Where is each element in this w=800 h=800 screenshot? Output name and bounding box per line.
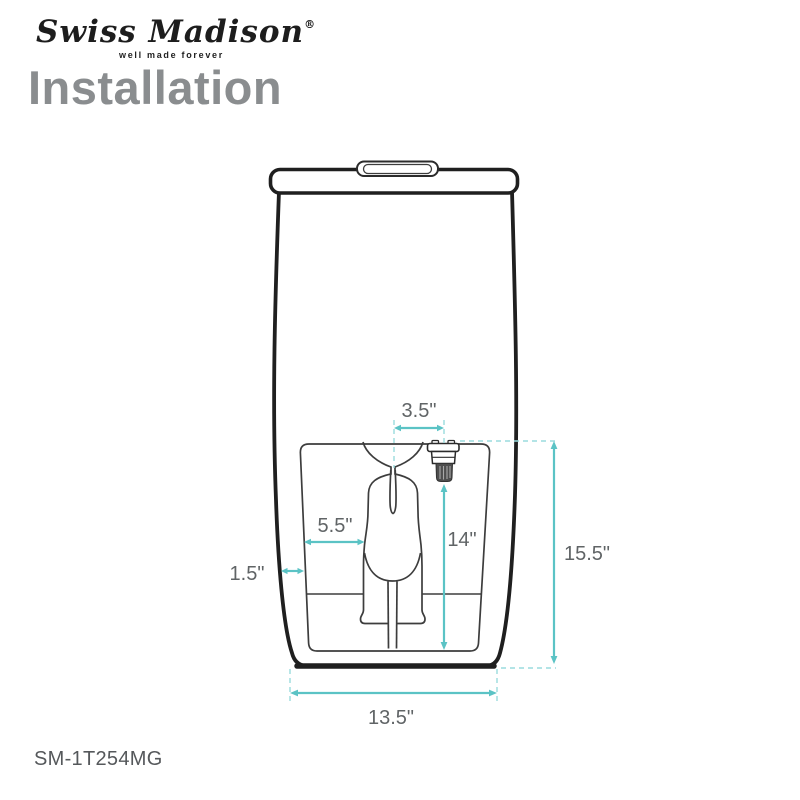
label-base-width: 13.5" <box>368 707 414 729</box>
drain-pipe-left <box>388 582 389 649</box>
label-valve-height: 14" <box>447 529 476 551</box>
model-number: SM-1T254MG <box>34 748 163 771</box>
dimension-base-width <box>290 690 497 697</box>
label-supply-height: 15.5" <box>564 543 610 565</box>
valve-flange <box>428 444 460 452</box>
label-wall-thickness: 1.5" <box>230 563 265 585</box>
page: { "brand": { "logo_text": "Swiss Madison… <box>0 0 800 800</box>
installation-diagram: 3.5" 5.5" 1.5" 14" 15.5" 13.5" <box>0 0 800 800</box>
label-trapway-offset: 5.5" <box>318 515 353 537</box>
toilet-outline <box>271 162 518 667</box>
dimension-supply-height <box>551 441 558 664</box>
label-supply-offset: 3.5" <box>402 400 437 422</box>
drain-pipe-right <box>397 582 398 649</box>
